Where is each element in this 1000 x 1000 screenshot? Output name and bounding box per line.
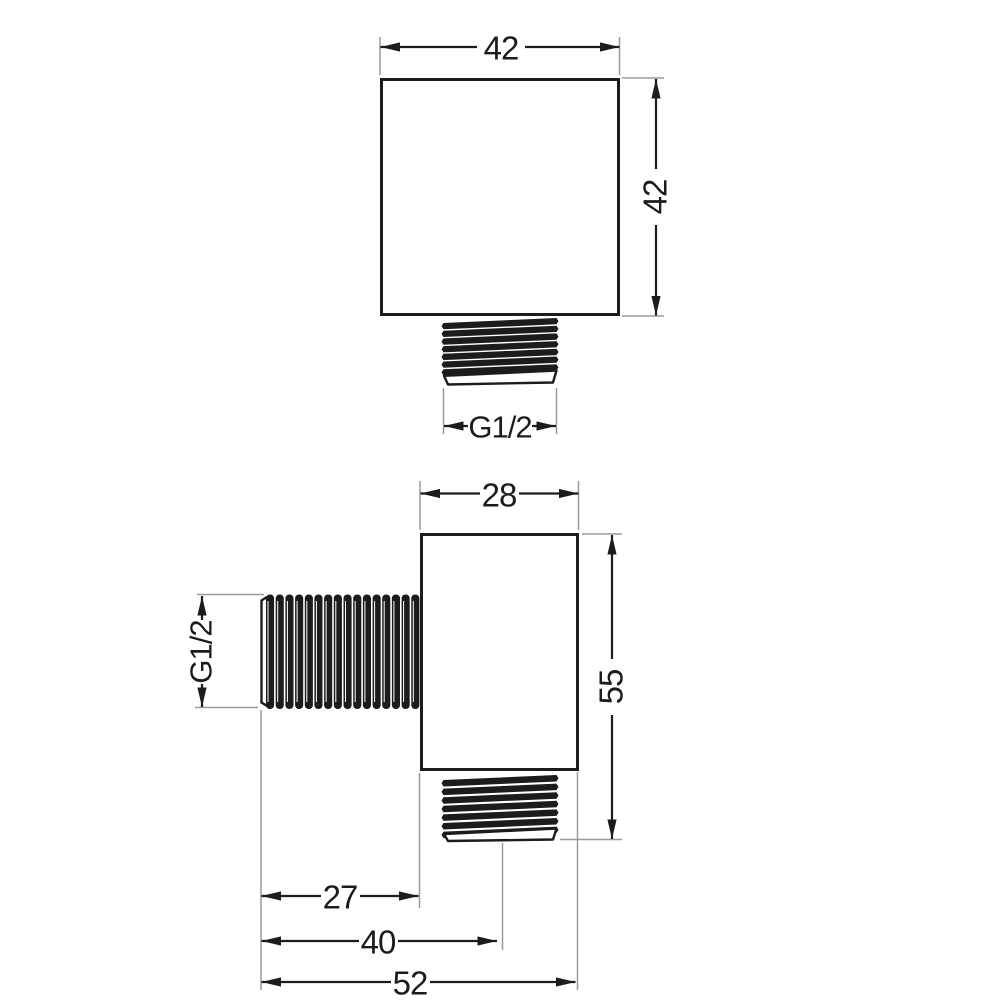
svg-text:27: 27	[323, 879, 358, 916]
svg-text:52: 52	[393, 965, 428, 1000]
svg-text:G1/2: G1/2	[468, 410, 531, 445]
svg-text:G1/2: G1/2	[184, 620, 219, 683]
svg-text:42: 42	[637, 180, 674, 215]
svg-text:40: 40	[361, 924, 396, 961]
svg-text:42: 42	[484, 30, 519, 67]
svg-text:55: 55	[593, 670, 630, 705]
svg-text:28: 28	[482, 477, 517, 514]
